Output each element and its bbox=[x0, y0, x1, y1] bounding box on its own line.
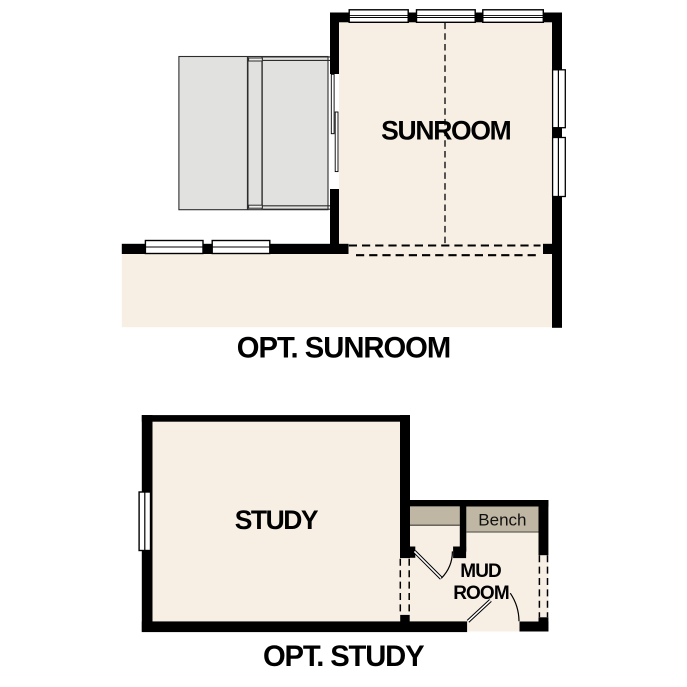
svg-text:OPT. SUNROOM: OPT. SUNROOM bbox=[237, 333, 450, 365]
svg-text:MUD: MUD bbox=[460, 561, 501, 582]
svg-text:OPT. STUDY: OPT. STUDY bbox=[263, 641, 424, 673]
svg-text:ROOM: ROOM bbox=[453, 583, 509, 604]
svg-text:STUDY: STUDY bbox=[235, 505, 319, 535]
svg-text:Bench: Bench bbox=[478, 511, 526, 530]
svg-text:SUNROOM: SUNROOM bbox=[381, 116, 511, 146]
